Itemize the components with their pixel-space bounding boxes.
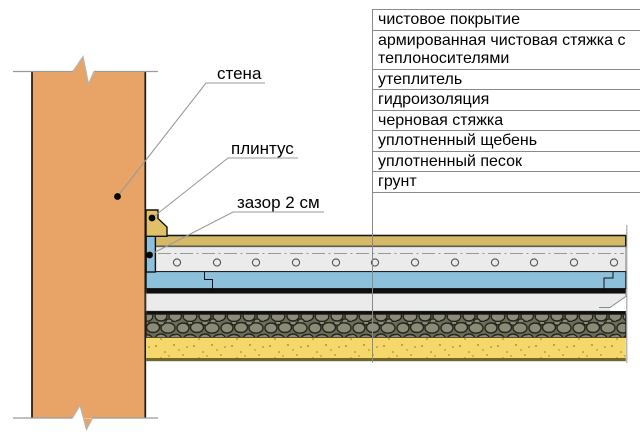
legend-row: уплотненный щебень bbox=[372, 131, 640, 152]
legend-row: черновая стяжка bbox=[372, 111, 640, 132]
wall-leader-dot bbox=[114, 193, 121, 200]
legend-row: чистовое покрытие bbox=[372, 10, 640, 31]
legend-row: гидроизоляция bbox=[372, 90, 640, 111]
gap-label: зазор 2 см bbox=[237, 194, 320, 212]
plinth-label: плинтус bbox=[231, 140, 294, 158]
legend-row: уплотненный песок bbox=[372, 152, 640, 173]
layer-sand bbox=[146, 338, 626, 361]
sand-bottom-border bbox=[146, 358, 626, 361]
legend-row: грунт bbox=[372, 172, 640, 193]
wall bbox=[32, 72, 146, 419]
layer-rough-screed bbox=[146, 294, 626, 312]
layer-finish-screed bbox=[155, 247, 626, 272]
floor-section-page: стена плинтус зазор 2 см чистовое покрыт… bbox=[0, 0, 640, 444]
gap-leader-dot bbox=[146, 252, 153, 259]
plinth-leader-dot bbox=[149, 215, 156, 222]
wall-label: стена bbox=[217, 65, 261, 83]
legend-row: утеплитель bbox=[372, 70, 640, 91]
layer-insulation bbox=[146, 272, 626, 289]
legend-table: чистовое покрытиеармированная чистовая с… bbox=[372, 9, 640, 193]
layer-crushed-stone bbox=[146, 314, 626, 337]
layer-finish-coating bbox=[155, 236, 626, 247]
layer-waterproofing bbox=[146, 289, 626, 294]
legend-row: армированная чистовая стяжка с теплоноси… bbox=[372, 31, 640, 70]
